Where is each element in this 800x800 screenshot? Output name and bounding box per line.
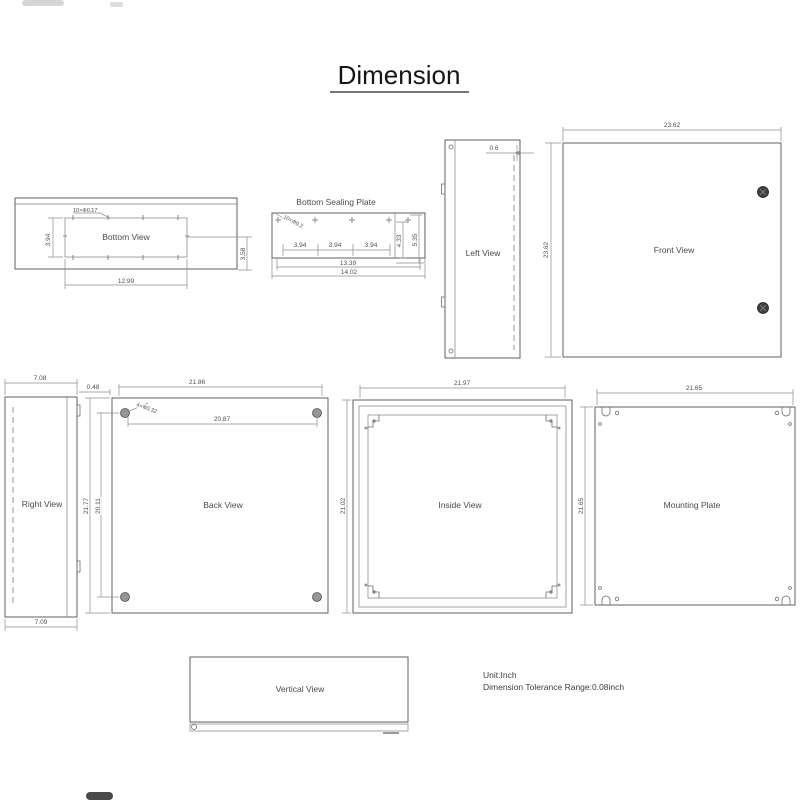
dimension-label: 21.65 bbox=[578, 497, 585, 514]
notch-hole bbox=[775, 597, 779, 601]
notch-hole bbox=[789, 587, 792, 590]
dimension-label: 3.94 bbox=[294, 242, 307, 249]
dimension-label: 3.94 bbox=[365, 242, 378, 249]
mounting-hole bbox=[121, 593, 130, 602]
dimension-label: 0.48 bbox=[87, 384, 100, 391]
corner-bracket bbox=[368, 586, 379, 598]
keyhole-notch bbox=[782, 407, 790, 416]
dimension-label: 20.87 bbox=[214, 416, 231, 423]
notch-hole bbox=[789, 423, 792, 426]
drawing-notes: Unit:Inch Dimension Tolerance Range:0.08… bbox=[483, 670, 624, 692]
hinge-mark bbox=[449, 349, 453, 353]
keyhole-notch bbox=[602, 596, 610, 605]
bottom-view: Bottom View 12.99 3.94 3.58 10×Φ0.17 bbox=[15, 198, 252, 289]
mounting-hole bbox=[313, 593, 322, 602]
base-mark bbox=[192, 725, 197, 730]
notch-hole bbox=[615, 597, 619, 601]
bracket-hole bbox=[558, 584, 560, 586]
back-view-label: Back View bbox=[203, 500, 243, 510]
dimension-label: 21.65 bbox=[686, 385, 703, 392]
notch-hole bbox=[775, 411, 779, 415]
dimension-label: 21.77 bbox=[83, 497, 90, 514]
inside-view-label: Inside View bbox=[438, 500, 482, 510]
mounting-plate-label: Mounting Plate bbox=[664, 500, 721, 510]
dimension-label: 21.97 bbox=[454, 380, 471, 387]
right-view: Right View 7.08 7.09 bbox=[5, 375, 80, 631]
notch-hole bbox=[599, 587, 602, 590]
mounting-plate-view: Mounting Plate 21.65 21.65 bbox=[578, 385, 795, 605]
page-title: Dimension bbox=[338, 60, 461, 90]
dimension-label: 7.08 bbox=[34, 375, 47, 382]
scan-artifact bbox=[110, 2, 123, 7]
keyhole-notch bbox=[782, 596, 790, 605]
corner-bracket bbox=[546, 586, 557, 598]
unit-note: Unit:Inch bbox=[483, 670, 517, 680]
corner-bracket bbox=[368, 415, 379, 427]
dimension-label: 20.11 bbox=[95, 498, 102, 514]
bracket-hole bbox=[558, 427, 560, 429]
dimension-label: 14.02 bbox=[341, 269, 358, 276]
scan-artifact bbox=[22, 0, 64, 6]
dimension-label: 23.62 bbox=[543, 241, 550, 258]
left-view: Left View 0.6 bbox=[442, 140, 535, 358]
bottom-view-label: Bottom View bbox=[102, 232, 150, 242]
dimension-label: 21.02 bbox=[340, 497, 347, 514]
vertical-view: Vertical View bbox=[190, 657, 408, 733]
hinge-mark bbox=[449, 145, 453, 149]
keyhole-notch bbox=[602, 407, 610, 416]
bracket-hole bbox=[365, 584, 367, 586]
hole-callout-label: 10×Φ0.2 bbox=[282, 214, 304, 229]
left-view-label: Left View bbox=[466, 248, 502, 258]
dimension-label: 23.62 bbox=[664, 122, 681, 129]
hinge-bump bbox=[442, 297, 446, 307]
front-view: Front View 23.62 23.62 bbox=[543, 122, 781, 357]
vertical-view-base bbox=[190, 724, 408, 731]
scan-artifact bbox=[86, 792, 113, 800]
hole-callout-label: 4×Φ0.32 bbox=[135, 402, 157, 415]
notch-hole bbox=[615, 411, 619, 415]
bottom-sealing-plate-view: Bottom Sealing Plate 10×Φ0.2 3.94 3.94 3… bbox=[272, 197, 425, 279]
vertical-view-label: Vertical View bbox=[276, 684, 325, 694]
dimension-label: 12.99 bbox=[118, 278, 135, 285]
technical-drawing: Dimension Bottom View 12.99 3.94 3.58 10… bbox=[0, 0, 800, 800]
dimension-label: 3.94 bbox=[329, 242, 342, 249]
dimension-line bbox=[563, 127, 781, 141]
right-view-label: Right View bbox=[22, 499, 63, 509]
dimension-label: 0.6 bbox=[489, 145, 498, 152]
hinge-bump bbox=[442, 184, 446, 194]
tolerance-note: Dimension Tolerance Range:0.08inch bbox=[483, 682, 624, 692]
dimension-label: 4.33 bbox=[396, 234, 403, 247]
dimension-label: 13.39 bbox=[340, 260, 357, 267]
dimension-label: 5.35 bbox=[412, 233, 419, 246]
dimension-drawing-page: Dimension Bottom View 12.99 3.94 3.58 10… bbox=[0, 0, 800, 800]
back-view: Back View 21.86 20.87 21.77 20.11 0.48 4… bbox=[79, 379, 328, 613]
sealing-plate-title: Bottom Sealing Plate bbox=[296, 197, 376, 207]
dimension-label: 21.86 bbox=[189, 379, 206, 386]
inside-view: Inside View 21.97 21.02 bbox=[340, 380, 572, 613]
dimension-line bbox=[119, 384, 322, 396]
front-view-label: Front View bbox=[654, 245, 695, 255]
dimension-label: 3.94 bbox=[45, 233, 52, 246]
dimension-label: 7.09 bbox=[35, 619, 48, 626]
notch-hole bbox=[599, 423, 602, 426]
bracket-hole bbox=[365, 427, 367, 429]
dimension-label: 3.58 bbox=[240, 247, 247, 260]
corner-bracket bbox=[546, 415, 557, 427]
